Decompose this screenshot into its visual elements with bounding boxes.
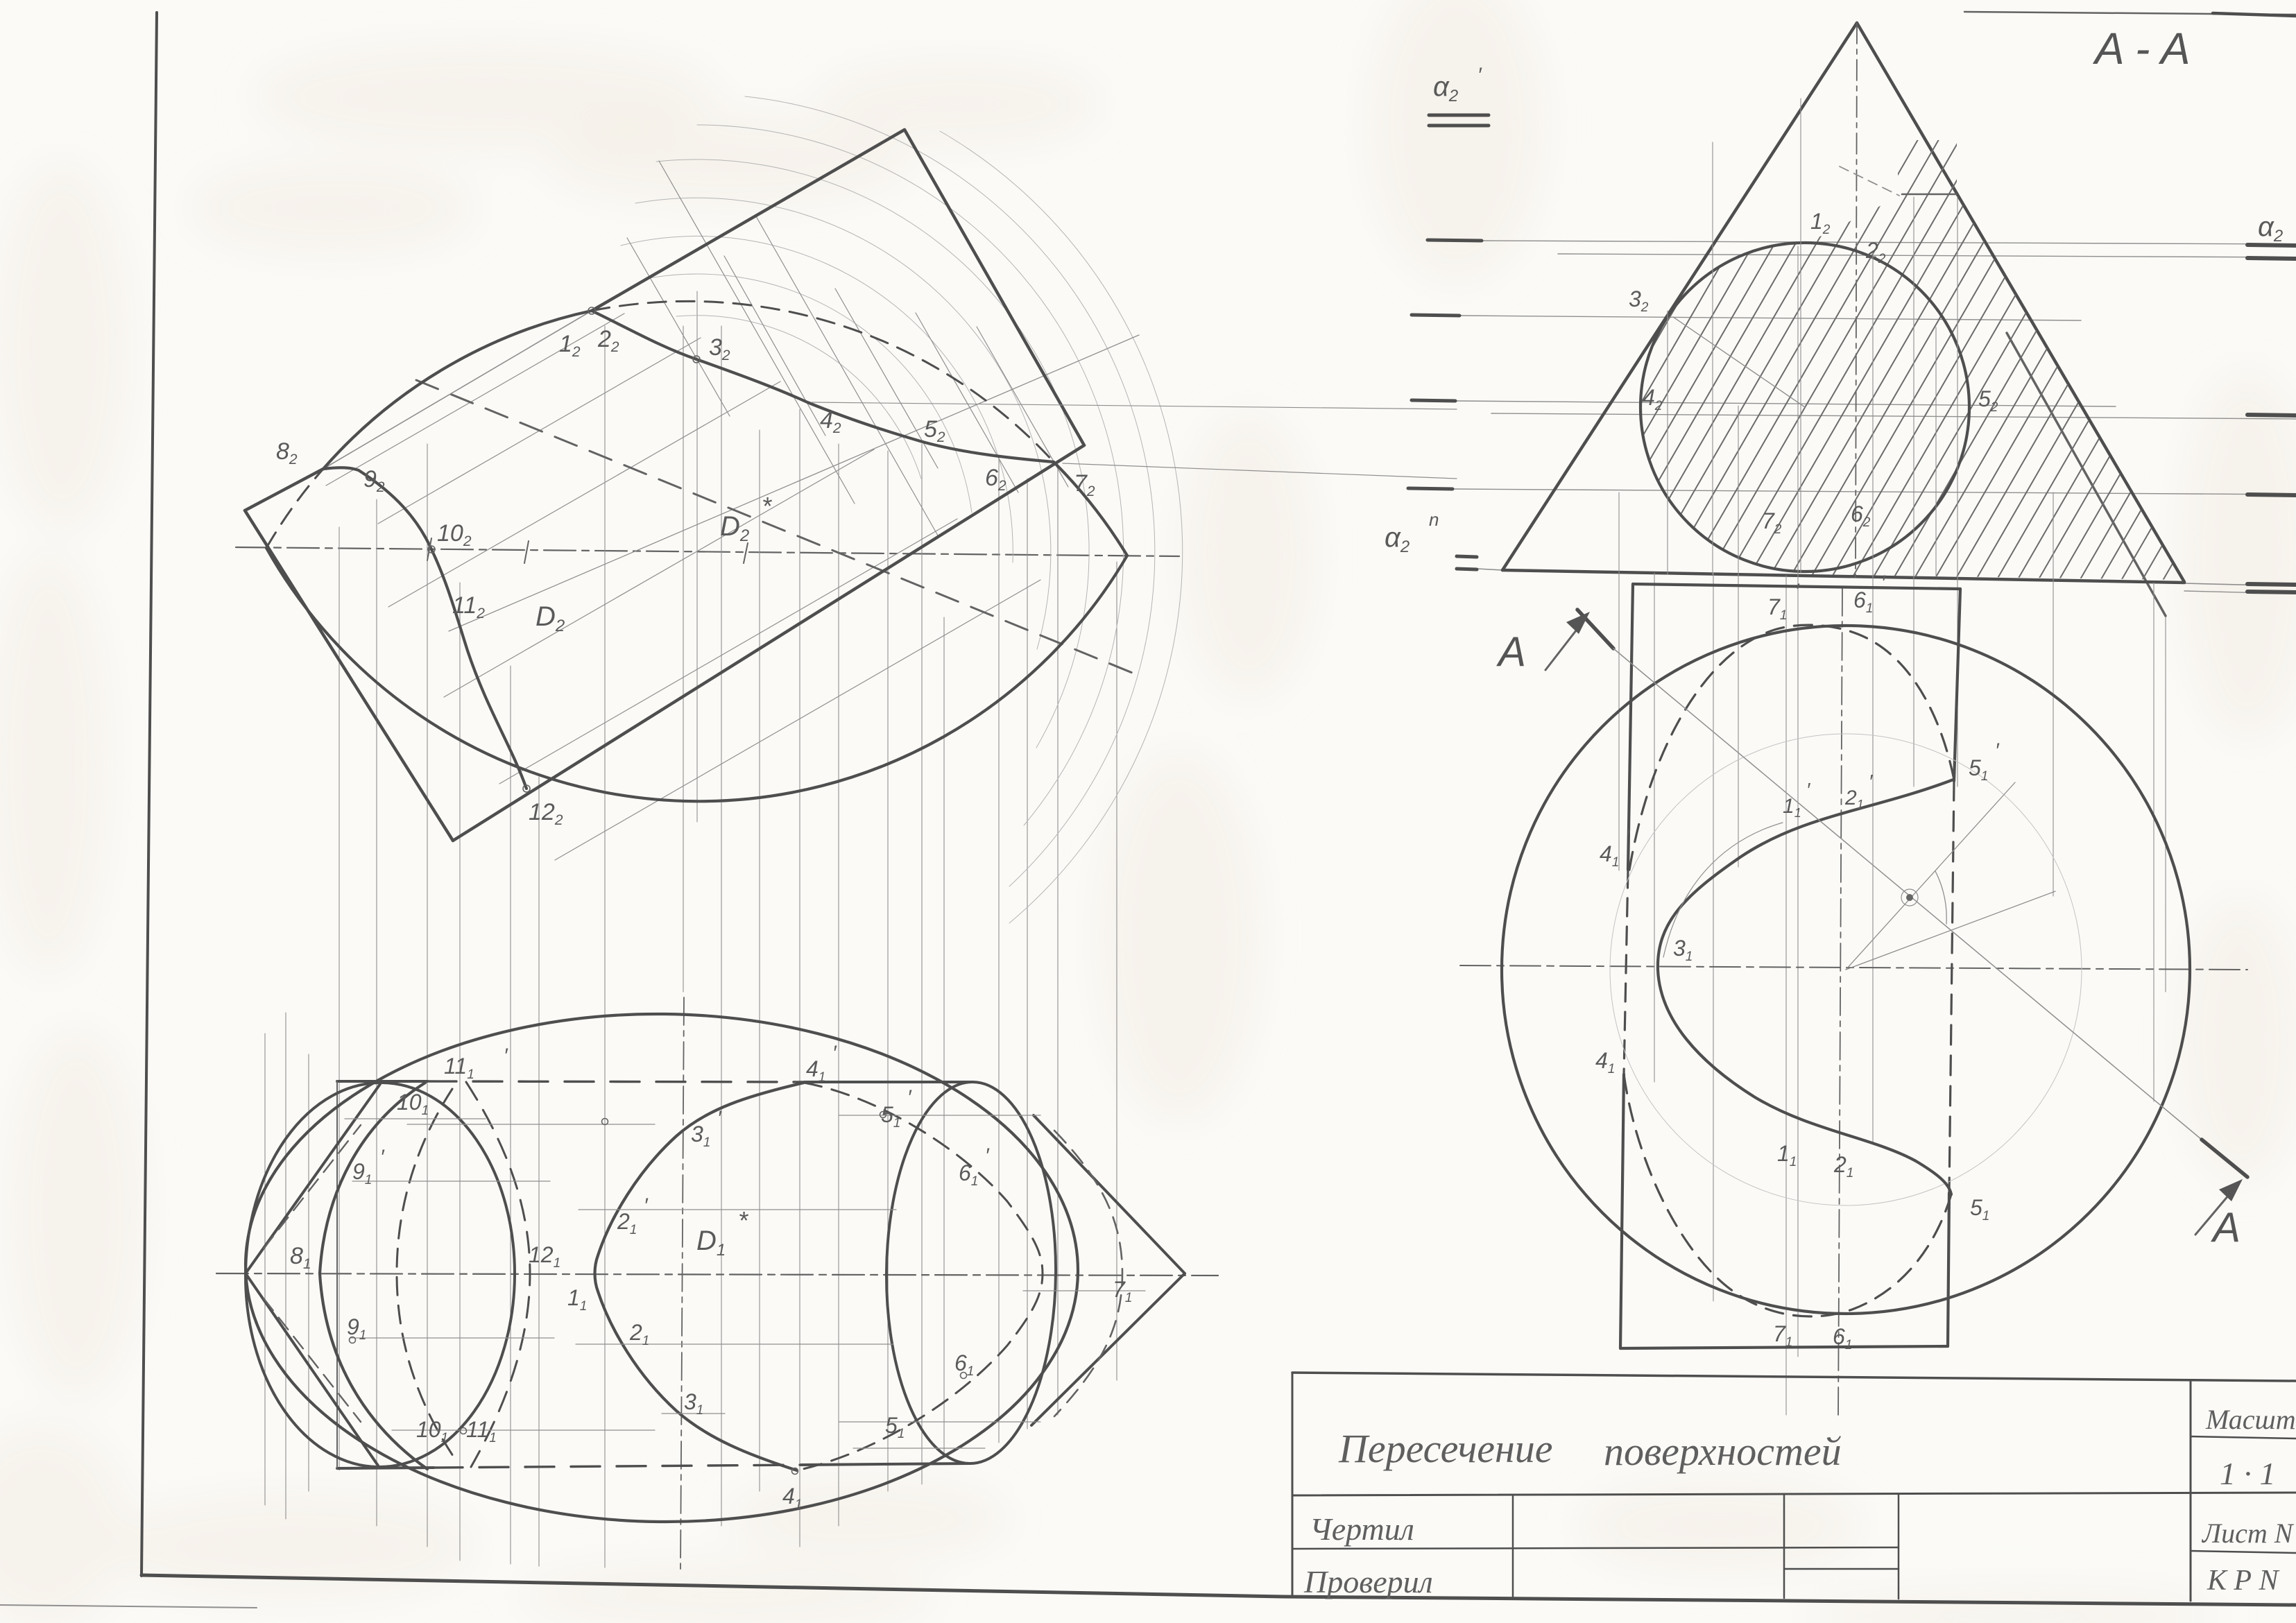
svg-text:поверхностей: поверхностей [1604,1429,1842,1474]
svg-text:1 · 1: 1 · 1 [2220,1456,2276,1491]
svg-text:A - A: A - A [2092,24,2191,74]
svg-text:Лист N: Лист N [2201,1518,2295,1549]
svg-text:n: n [1429,509,1439,530]
svg-text:A: A [2211,1204,2241,1251]
svg-text:*: * [738,1206,748,1235]
svg-text:Проверил: Проверил [1303,1564,1433,1599]
svg-text:A: A [1496,628,1526,675]
svg-text:Масшт: Масшт [2205,1404,2296,1435]
svg-text:*: * [762,492,772,520]
svg-text:Пересечение: Пересечение [1338,1426,1553,1471]
svg-text:К Р N: К Р N [2207,1565,2280,1597]
svg-text:Чертил: Чертил [1310,1511,1414,1547]
